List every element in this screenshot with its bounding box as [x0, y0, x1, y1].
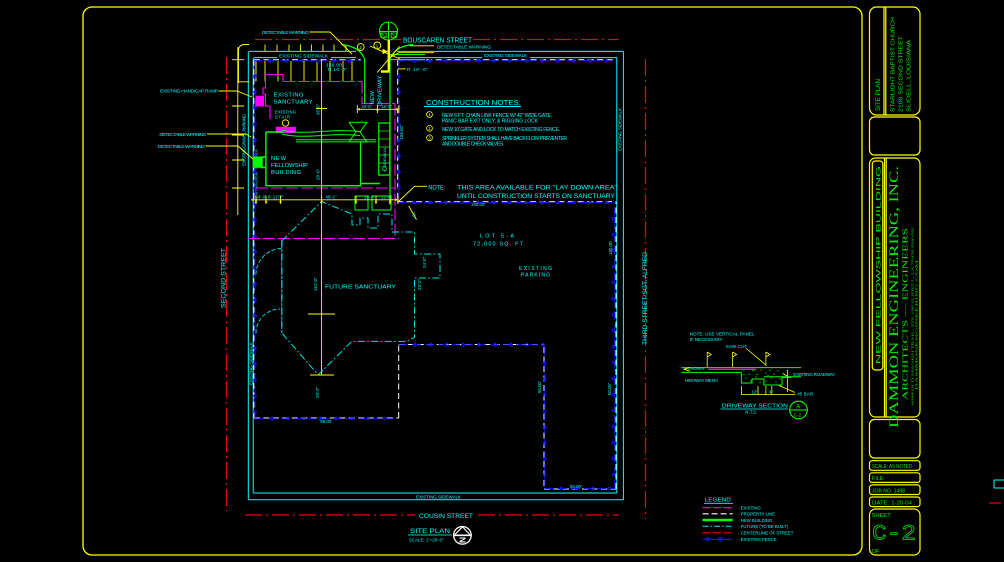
svg-text:4' SIDEWALK: 4' SIDEWALK: [382, 147, 387, 172]
svg-text:60.00': 60.00': [607, 383, 612, 395]
svg-text:COUSIN STREET: COUSIN STREET: [419, 513, 473, 520]
svg-text:2100 SECOND STREET: 2100 SECOND STREET: [899, 35, 905, 112]
svg-text:NEW: NEW: [271, 156, 287, 162]
svg-text:LEGEND: LEGEND: [705, 498, 731, 504]
svg-text:NEW: NEW: [370, 90, 376, 104]
svg-text:EXISTING SIDEWALK: EXISTING SIDEWALK: [484, 53, 528, 58]
svg-text:STARLIGHT BAPTIST CHURCH: STARLIGHT BAPTIST CHURCH: [891, 17, 897, 112]
svg-text:4": 4": [769, 390, 774, 395]
svg-text:AND DOUBLE CHECK VALVES.: AND DOUBLE CHECK VALVES.: [442, 141, 504, 147]
svg-text:IF NECESSARY: IF NECESSARY: [690, 337, 723, 342]
svg-text:EXISTING HANDICAP RAMP: EXISTING HANDICAP RAMP: [160, 89, 218, 95]
svg-text:NOTE: USE VERTICAL PANEL: NOTE: USE VERTICAL PANEL: [690, 332, 755, 337]
svg-text:- EXISTING: - EXISTING: [738, 506, 761, 511]
svg-text:THIS AREA AVAILABLE FOR "LAY D: THIS AREA AVAILABLE FOR "LAY DOWN AREA": [457, 185, 618, 192]
svg-text:4'-0": 4'-0": [258, 195, 267, 200]
svg-text:STAIR: STAIR: [275, 115, 290, 120]
svg-text:24'-0": 24'-0": [422, 256, 427, 268]
svg-text:72,000 SQ. FT.: 72,000 SQ. FT.: [473, 242, 525, 248]
svg-text:NEW FELLOWSHIP BUILDING: NEW FELLOWSHIP BUILDING: [876, 166, 883, 364]
svg-text:N.T.S.: N.T.S.: [745, 410, 757, 415]
svg-text:NEW 10' GATE AND LOCK TO MATCH: NEW 10' GATE AND LOCK TO MATCH EXISTING …: [442, 127, 560, 133]
svg-text:EXISTING SIDEWALK: EXISTING SIDEWALK: [618, 107, 623, 151]
svg-text:DETECTABLE WARNING: DETECTABLE WARNING: [158, 144, 205, 150]
svg-text:12'-0": 12'-0": [381, 195, 393, 200]
svg-text:BUILDING: BUILDING: [271, 170, 301, 176]
svg-text:EXISTING SIDEWALK: EXISTING SIDEWALK: [416, 494, 462, 499]
svg-text:29'-2": 29'-2": [417, 278, 422, 290]
svg-text:DAMMON ENGINEERING, INC.: DAMMON ENGINEERING, INC.: [887, 166, 901, 428]
svg-text:FUTURE SANCTUARY: FUTURE SANCTUARY: [325, 285, 397, 291]
svg-text:158.00': 158.00': [399, 125, 404, 139]
svg-text:DATE: 1-20-04: DATE: 1-20-04: [872, 500, 912, 506]
svg-text:95.00': 95.00': [320, 419, 332, 424]
svg-text:60.00': 60.00': [537, 381, 542, 393]
svg-text:DRIVEWAY: DRIVEWAY: [378, 76, 384, 106]
svg-text:SAW CUT: SAW CUT: [726, 344, 747, 349]
svg-text:161'-0": 161'-0": [313, 277, 318, 291]
svg-text:A: A: [796, 405, 800, 411]
svg-text:SANCTUARY: SANCTUARY: [274, 100, 313, 106]
svg-text:EXISTING GRAVEL PARKING: EXISTING GRAVEL PARKING: [242, 114, 247, 166]
svg-text:PANIC BAR EXIT ONLY, & RIGGING: PANIC BAR EXIT ONLY, & RIGGING LOCK: [442, 119, 539, 125]
svg-text:18'-0": 18'-0": [364, 195, 376, 200]
svg-text:- PROPERTY LINE: - PROPERTY LINE: [738, 512, 775, 517]
svg-text:29'-2": 29'-2": [315, 386, 320, 398]
svg-text:36'-6": 36'-6": [316, 103, 321, 115]
svg-text:EXISTING: EXISTING: [274, 93, 304, 99]
svg-text:158.00': 158.00': [326, 63, 343, 69]
svg-text:- FUTURE (TO BE BUILT): - FUTURE (TO BE BUILT): [738, 524, 789, 529]
svg-text:FILE:: FILE:: [872, 476, 885, 482]
svg-text:EXISTING: EXISTING: [519, 266, 552, 272]
svg-text:18'-0": 18'-0": [361, 104, 373, 109]
svg-text:NOTE:: NOTE:: [428, 185, 445, 192]
svg-text:SECOND STREET: SECOND STREET: [221, 248, 228, 308]
svg-text:JOB NO. 1498: JOB NO. 1498: [872, 488, 905, 494]
svg-text:THIRD STREET/SGT. ALFRED: THIRD STREET/SGT. ALFRED: [642, 251, 649, 345]
svg-text:86.00': 86.00': [570, 484, 582, 489]
svg-text:DETECTABLE WARNING: DETECTABLE WARNING: [437, 45, 491, 51]
svg-text:SCALE: 1"=20'-0": SCALE: 1"=20'-0": [409, 538, 444, 543]
svg-text:DAMMONENGINEERING.COM: DAMMONENGINEERING.COM: [915, 260, 919, 390]
svg-text:C-2: C-2: [872, 522, 916, 547]
svg-text:- EXISTING FENCE: - EXISTING FENCE: [738, 537, 777, 542]
svg-text:160.00': 160.00': [471, 202, 485, 207]
svg-text:SCALE: AS NOTED: SCALE: AS NOTED: [872, 464, 912, 470]
svg-text:DETECTABLE WARNING: DETECTABLE WARNING: [262, 30, 309, 36]
svg-text:R 16'-0": R 16'-0": [407, 67, 428, 73]
svg-text:DETECTABLE WARNING: DETECTABLE WARNING: [159, 132, 206, 138]
svg-text:- CENTERLINE OF STREET: - CENTERLINE OF STREET: [738, 531, 794, 536]
svg-text:28'-0": 28'-0": [316, 168, 321, 180]
svg-text:PARKING: PARKING: [521, 273, 550, 279]
svg-text:EXISTING SIDEWALK: EXISTING SIDEWALK: [249, 341, 254, 385]
svg-text:#5 BAR: #5 BAR: [797, 392, 814, 397]
svg-text:OF: OF: [872, 549, 881, 555]
svg-text:FELLOWSHIP: FELLOWSHIP: [271, 163, 308, 169]
svg-text:CONSTRUCTION NOTES:: CONSTRUCTION NOTES:: [426, 98, 521, 107]
svg-text:HIGHWAY MESH: HIGHWAY MESH: [685, 378, 718, 383]
svg-text:150.00': 150.00': [608, 241, 613, 255]
svg-text:SHEET: SHEET: [872, 513, 892, 519]
svg-text:SITE PLAN: SITE PLAN: [875, 79, 882, 111]
svg-text:18'-0": 18'-0": [381, 104, 393, 109]
svg-text:BOUSCAREN STREET: BOUSCAREN STREET: [403, 38, 473, 45]
svg-text:- NEW BUILDING: - NEW BUILDING: [738, 518, 773, 523]
svg-text:N: N: [457, 537, 467, 543]
svg-text:EXISTING SIDEWALK: EXISTING SIDEWALK: [279, 53, 329, 58]
svg-text:6'-11??": 6'-11??": [268, 195, 284, 200]
svg-text:EXISTING ROADWAY: EXISTING ROADWAY: [793, 372, 835, 377]
svg-text:ARCHITECTS — ENGINEERS: ARCHITECTS — ENGINEERS: [901, 228, 910, 400]
svg-text:UNTIL CONSTRUCTION STARTS ON S: UNTIL CONSTRUCTION STARTS ON SANCTUARY: [457, 193, 616, 200]
svg-text:SLIDELL, LOUISIANA: SLIDELL, LOUISIANA: [907, 40, 913, 112]
svg-text:48'-1": 48'-1": [326, 195, 338, 200]
svg-text:SITE PLAN: SITE PLAN: [410, 528, 450, 535]
svg-text:C-2: C-2: [794, 413, 802, 418]
svg-text:12": 12": [751, 390, 758, 395]
